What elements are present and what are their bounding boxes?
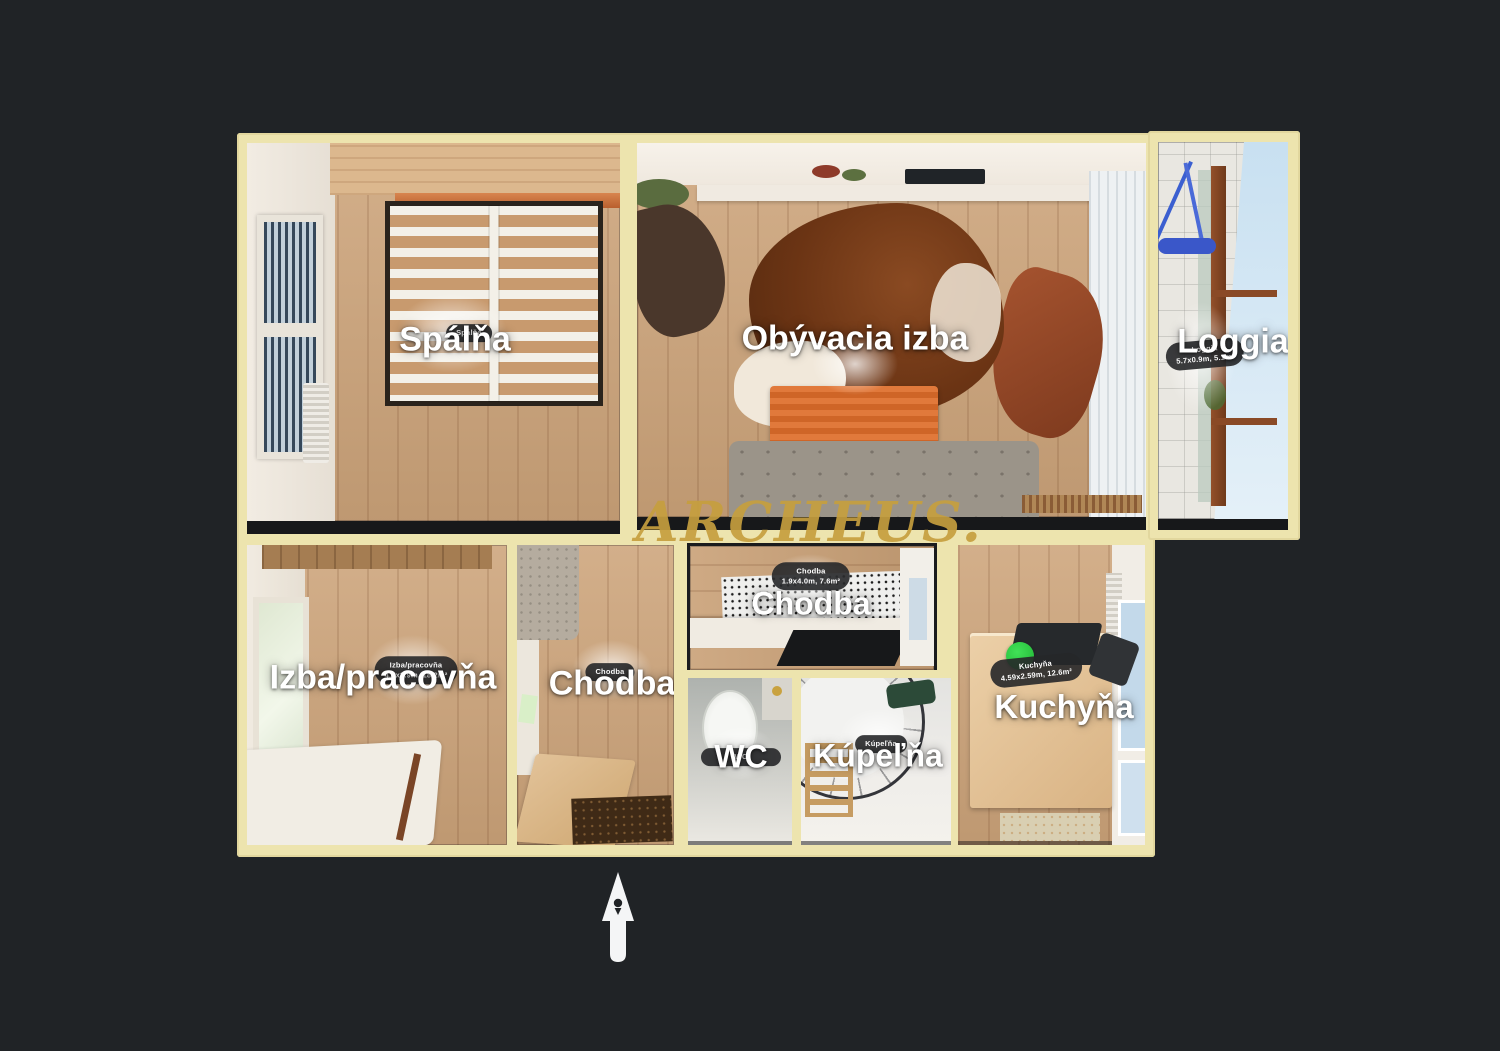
kitchen-doormat (1000, 813, 1100, 841)
sofa-corner (517, 545, 579, 640)
room-spalna: Spálňa Spálňa (247, 143, 620, 521)
badge-room-dims: 1.9x4.0m, 7.6m² (782, 576, 840, 586)
plant-red (812, 165, 840, 178)
room-label-kuchyna: Kuchyňa (994, 688, 1133, 726)
entry-doormat (571, 795, 673, 844)
bedroom-radiator (303, 383, 329, 463)
room-label-kupelna: Kúpeľňa (813, 738, 943, 775)
room-chodba-main: Chodba Chodba (517, 545, 674, 845)
green-towel (886, 679, 937, 709)
room-kupelna: Kúpeľňa Kúpeľňa (801, 678, 951, 845)
room-label-izba-pracovna: Izba/pracovňa (270, 659, 497, 698)
dark-runner (777, 630, 912, 666)
kitchen-window-lower (1118, 760, 1145, 836)
room-izba-pracovna: Izba/pracovňa 4.7x3.9m, 18.2m² Izba/prac… (247, 545, 507, 845)
floor-plan-canvas: Spálňa Spálňa Obývacia izba (0, 0, 1500, 1051)
wall-shelf (262, 545, 492, 569)
room-obyvacia-izba: Obývacia izba (637, 143, 1146, 517)
badge-room-name: Chodba (782, 566, 840, 576)
wall-shadow (247, 521, 620, 534)
room-label-chodba-main: Chodba (549, 665, 674, 704)
room-label-loggia: Loggia (1177, 323, 1288, 362)
room-chodba-top: Chodba 1.9x4.0m, 7.6m² Chodba (687, 543, 937, 670)
room-loggia: Loggia 5.7x0.9m, 5.1m² Loggia (1158, 142, 1288, 519)
window-crossbar (264, 323, 316, 337)
butterfly-chair-left (637, 194, 738, 344)
window-blinds-upper (264, 222, 316, 323)
room-label-chodba-top: Chodba (751, 586, 870, 623)
plant-green (842, 169, 866, 181)
corner-shelf (762, 678, 792, 720)
room-label-spalna: Spálňa (399, 321, 510, 360)
room-label-wc: WC (714, 739, 767, 776)
hall-window-sliver (909, 578, 927, 640)
room-wc: WC WC (688, 678, 792, 845)
wall-shadow (1158, 519, 1288, 530)
window-crossbar-upper (1211, 290, 1277, 297)
room-kuchyna: Kuchyňa 4.59x2.59m, 12.6m² Kuchyňa (958, 545, 1145, 845)
sideboard (697, 185, 1097, 201)
livingroom-ceiling-strip (637, 143, 1146, 185)
shelf-items (772, 686, 782, 696)
north-arrow-icon (598, 871, 638, 968)
livingroom-radiator (1022, 495, 1142, 513)
bedroom-top-shelf (330, 143, 620, 195)
window-crossbar-lower (1211, 418, 1277, 425)
watermark-text: ARCHEUS. (636, 489, 983, 554)
tv (905, 169, 985, 184)
room-label-obyvacia-izba: Obývacia izba (742, 320, 969, 359)
drying-rack-base (1158, 238, 1216, 254)
